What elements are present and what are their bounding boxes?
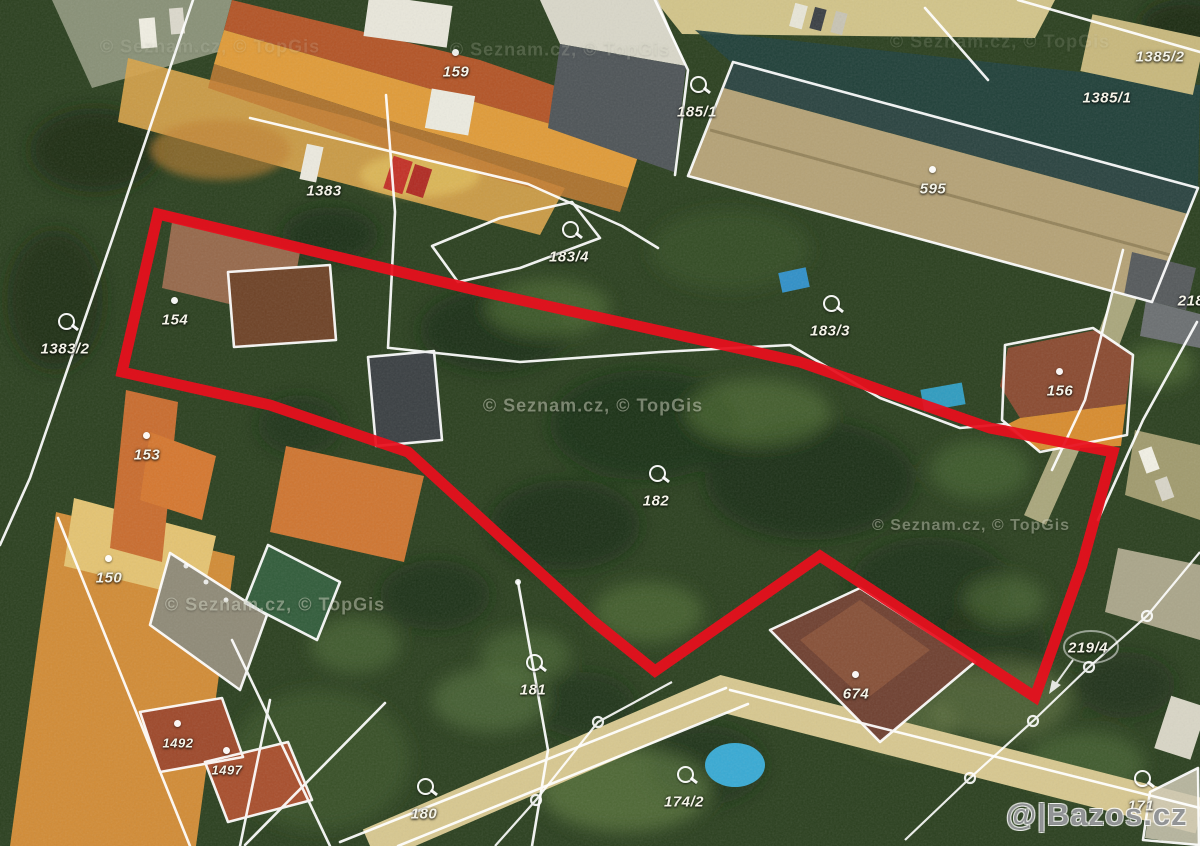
- satellite-imagery: [0, 0, 1200, 846]
- parcel-dot-icon: [143, 432, 150, 439]
- parcel-dot-icon: [1056, 368, 1063, 375]
- map-provider-watermark: © Seznam.cz, © TopGis: [450, 40, 670, 61]
- parcel-dot-icon: [171, 297, 178, 304]
- map-provider-watermark: © Seznam.cz, © TopGis: [100, 37, 320, 58]
- parcel-pin-icon: [823, 295, 840, 312]
- parcel-pin-icon: [526, 654, 543, 671]
- parcel-pin-icon: [1134, 770, 1151, 787]
- photo-grain: [0, 0, 1200, 846]
- parcel-dot-icon: [105, 555, 112, 562]
- map-provider-watermark: © Seznam.cz, © TopGis: [483, 396, 703, 417]
- map-provider-watermark: © Seznam.cz, © TopGis: [165, 595, 385, 616]
- parcel-dot-icon: [174, 720, 181, 727]
- map-provider-watermark: © Seznam.cz, © TopGis: [872, 517, 1070, 535]
- parcel-dot-icon: [223, 747, 230, 754]
- boundary-point-marker: [515, 579, 521, 585]
- parcel-pin-icon: [562, 221, 579, 238]
- parcel-pin-icon: [417, 778, 434, 795]
- aerial-cadastral-map: 159 1383 1385/2 1385/1 185/1 595 183/4 1…: [0, 0, 1200, 846]
- parcel-pin-icon: [677, 766, 694, 783]
- bazos-watermark: @|Bazos.cz: [1006, 797, 1188, 833]
- parcel-pin-icon: [690, 76, 707, 93]
- parcel-pin-icon: [58, 313, 75, 330]
- map-provider-watermark: © Seznam.cz, © TopGis: [890, 32, 1110, 53]
- parcel-pin-icon: [649, 465, 666, 482]
- parcel-dot-icon: [852, 671, 859, 678]
- parcel-dot-icon: [929, 166, 936, 173]
